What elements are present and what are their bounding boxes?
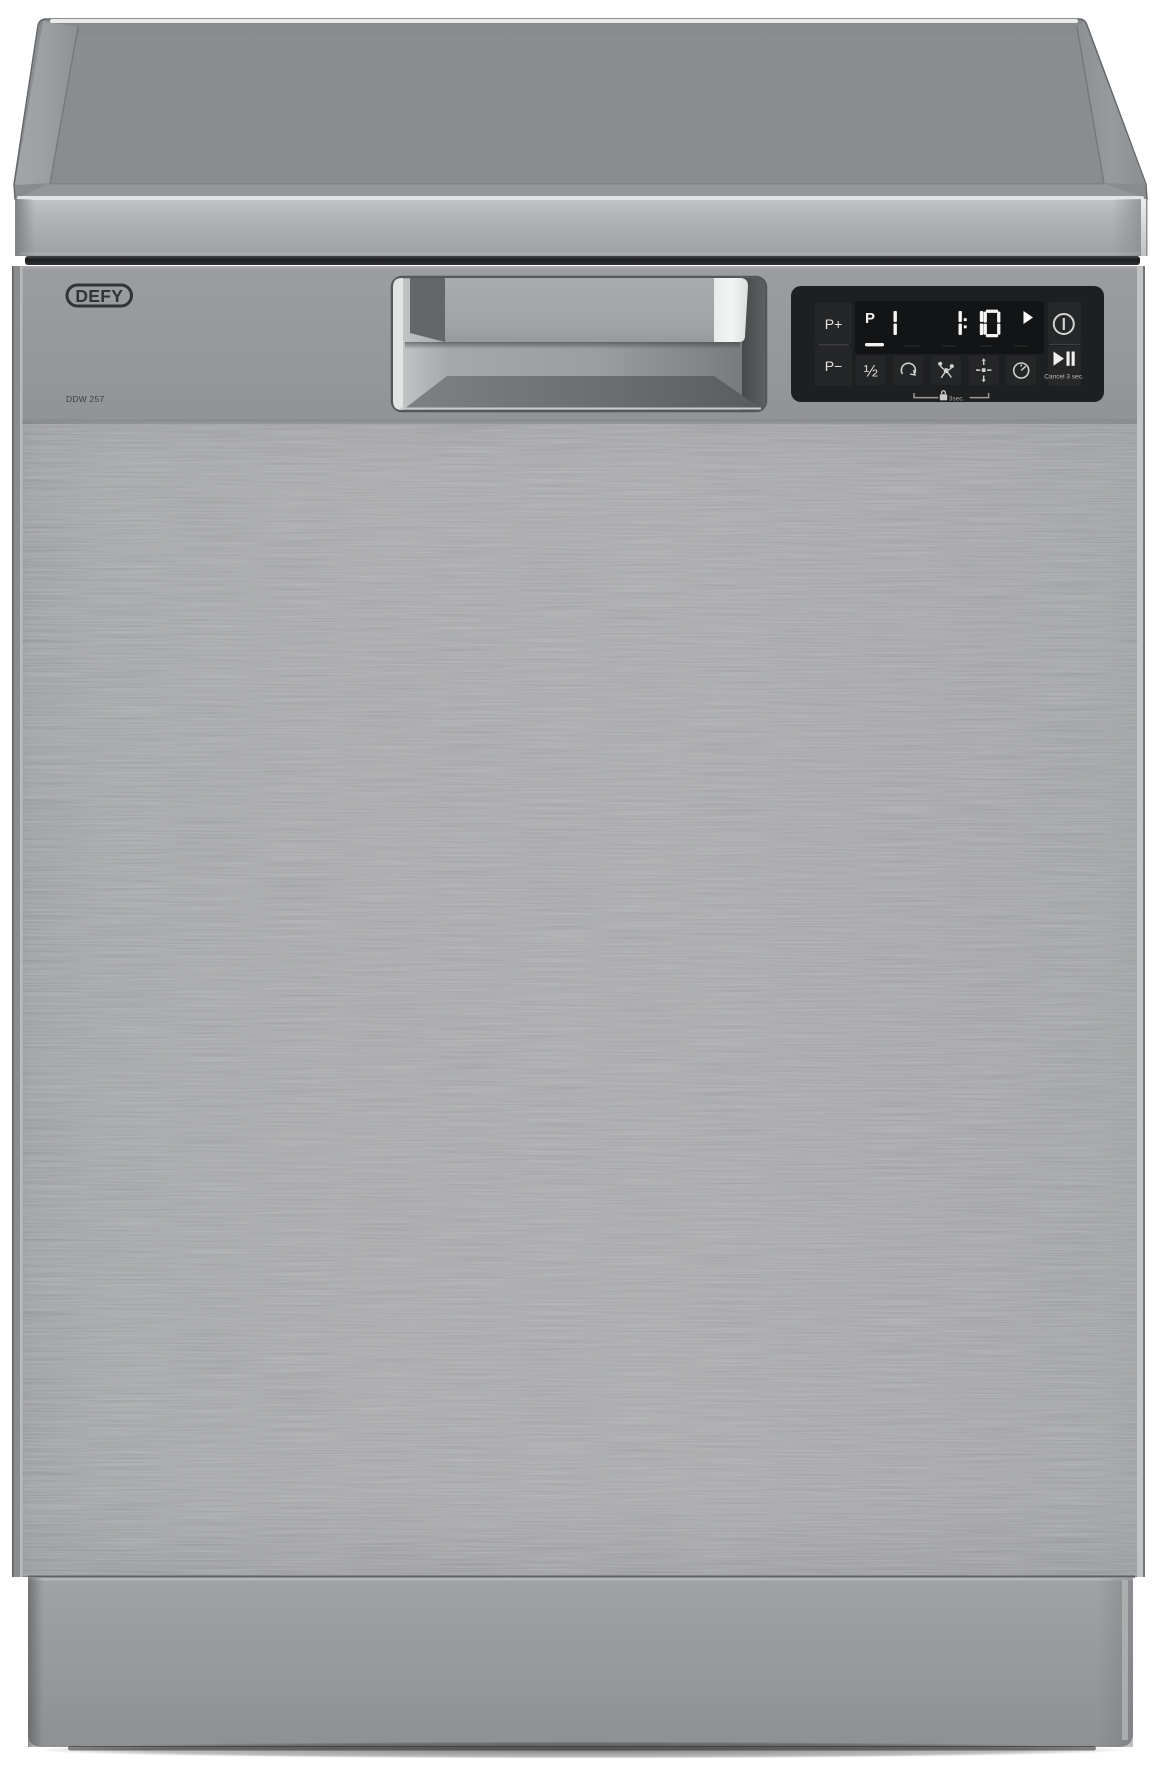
svg-text:P: P xyxy=(865,310,875,327)
svg-text:½: ½ xyxy=(864,362,878,381)
svg-text:DDW 257: DDW 257 xyxy=(66,394,104,404)
svg-text:DEFY: DEFY xyxy=(75,286,123,306)
svg-text:P+: P+ xyxy=(825,316,843,332)
svg-text:Cancel 3 sec.: Cancel 3 sec. xyxy=(1044,374,1084,381)
svg-text:3sec.: 3sec. xyxy=(949,396,965,403)
svg-text:P−: P− xyxy=(825,358,843,374)
